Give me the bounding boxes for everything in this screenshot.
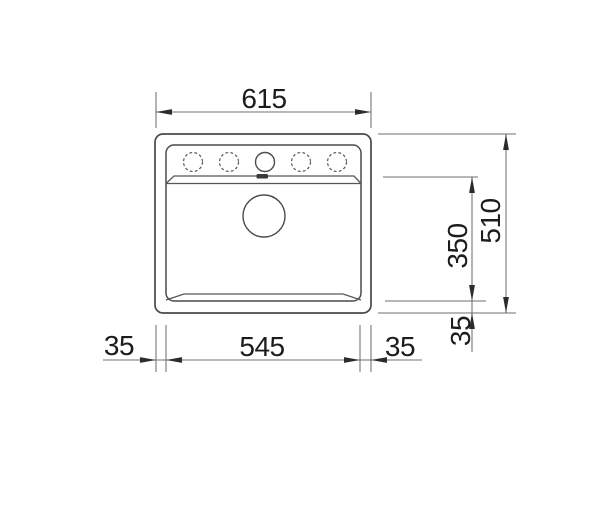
arrowhead-right-icon [355,109,371,115]
bowl-bottom-edge [166,294,361,300]
sink-dimension-diagram: 615 35 545 35 510 350 35 [0,0,616,522]
arrowhead-up-icon [503,134,509,150]
dim-bowl-width-label: 545 [239,331,284,362]
tap-hole-center-icon [256,153,275,172]
tap-hole-4-icon [292,153,311,172]
sink-outer-rim [155,134,371,313]
arrowhead-bowl-left-icon [166,357,182,363]
dim-overall-width: 615 [156,83,371,128]
dim-bowl-front-to-back-label: 350 [442,223,473,268]
sink-body [155,134,371,313]
dim-rim-left-label: 35 [104,330,134,361]
tap-hole-2-icon [220,153,239,172]
arrowhead-down-icon [469,285,475,301]
tap-hole-5-icon [328,153,347,172]
technical-drawing-canvas: 615 35 545 35 510 350 35 [0,0,616,522]
sink-bowl-edge [166,145,361,301]
drain-outline [243,195,285,237]
arrowhead-bowl-right-icon [344,357,360,363]
arrowhead-up-icon [469,177,475,193]
arrowhead-left-icon [156,109,172,115]
tap-hole-row [184,153,347,172]
dim-right-chain: 510 350 35 [378,134,516,352]
dim-bottom-chain: 35 545 35 [103,325,422,372]
arrowhead-rim-left-icon [140,357,156,363]
dim-overall-width-label: 615 [241,83,286,114]
tap-hole-1-icon [184,153,203,172]
overflow-mark [257,174,269,179]
dim-rim-right-label: 35 [385,331,415,362]
arrowhead-down-icon [503,297,509,313]
dim-rim-bottom-label: 35 [445,316,476,346]
dim-overall-depth-label: 510 [475,198,506,243]
